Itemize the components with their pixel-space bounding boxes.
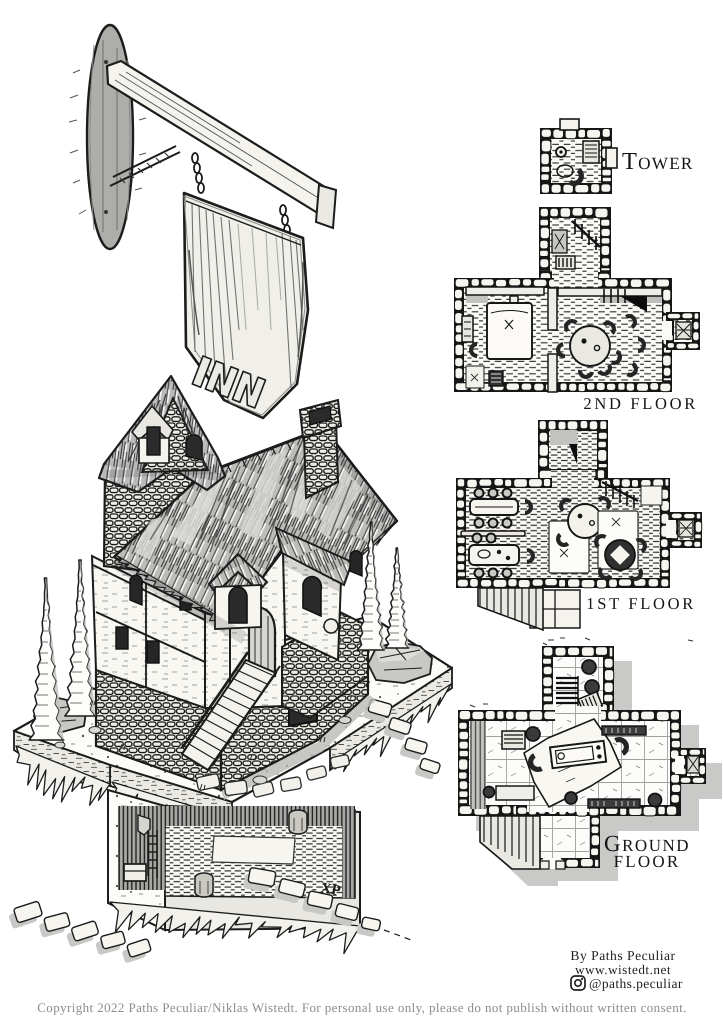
svg-text:@paths.peculiar: @paths.peculiar: [589, 976, 683, 991]
svg-text:By Paths Peculiar: By Paths Peculiar: [570, 948, 675, 963]
svg-text:FLOOR: FLOOR: [614, 852, 681, 871]
svg-text:1ST FLOOR: 1ST FLOOR: [586, 594, 696, 613]
svg-text:Copyright 2022 Paths Peculiar/: Copyright 2022 Paths Peculiar/Niklas Wis…: [37, 1000, 687, 1015]
svg-text:2ND FLOOR: 2ND FLOOR: [583, 394, 698, 413]
svg-text:www.wistedt.net: www.wistedt.net: [575, 962, 671, 977]
